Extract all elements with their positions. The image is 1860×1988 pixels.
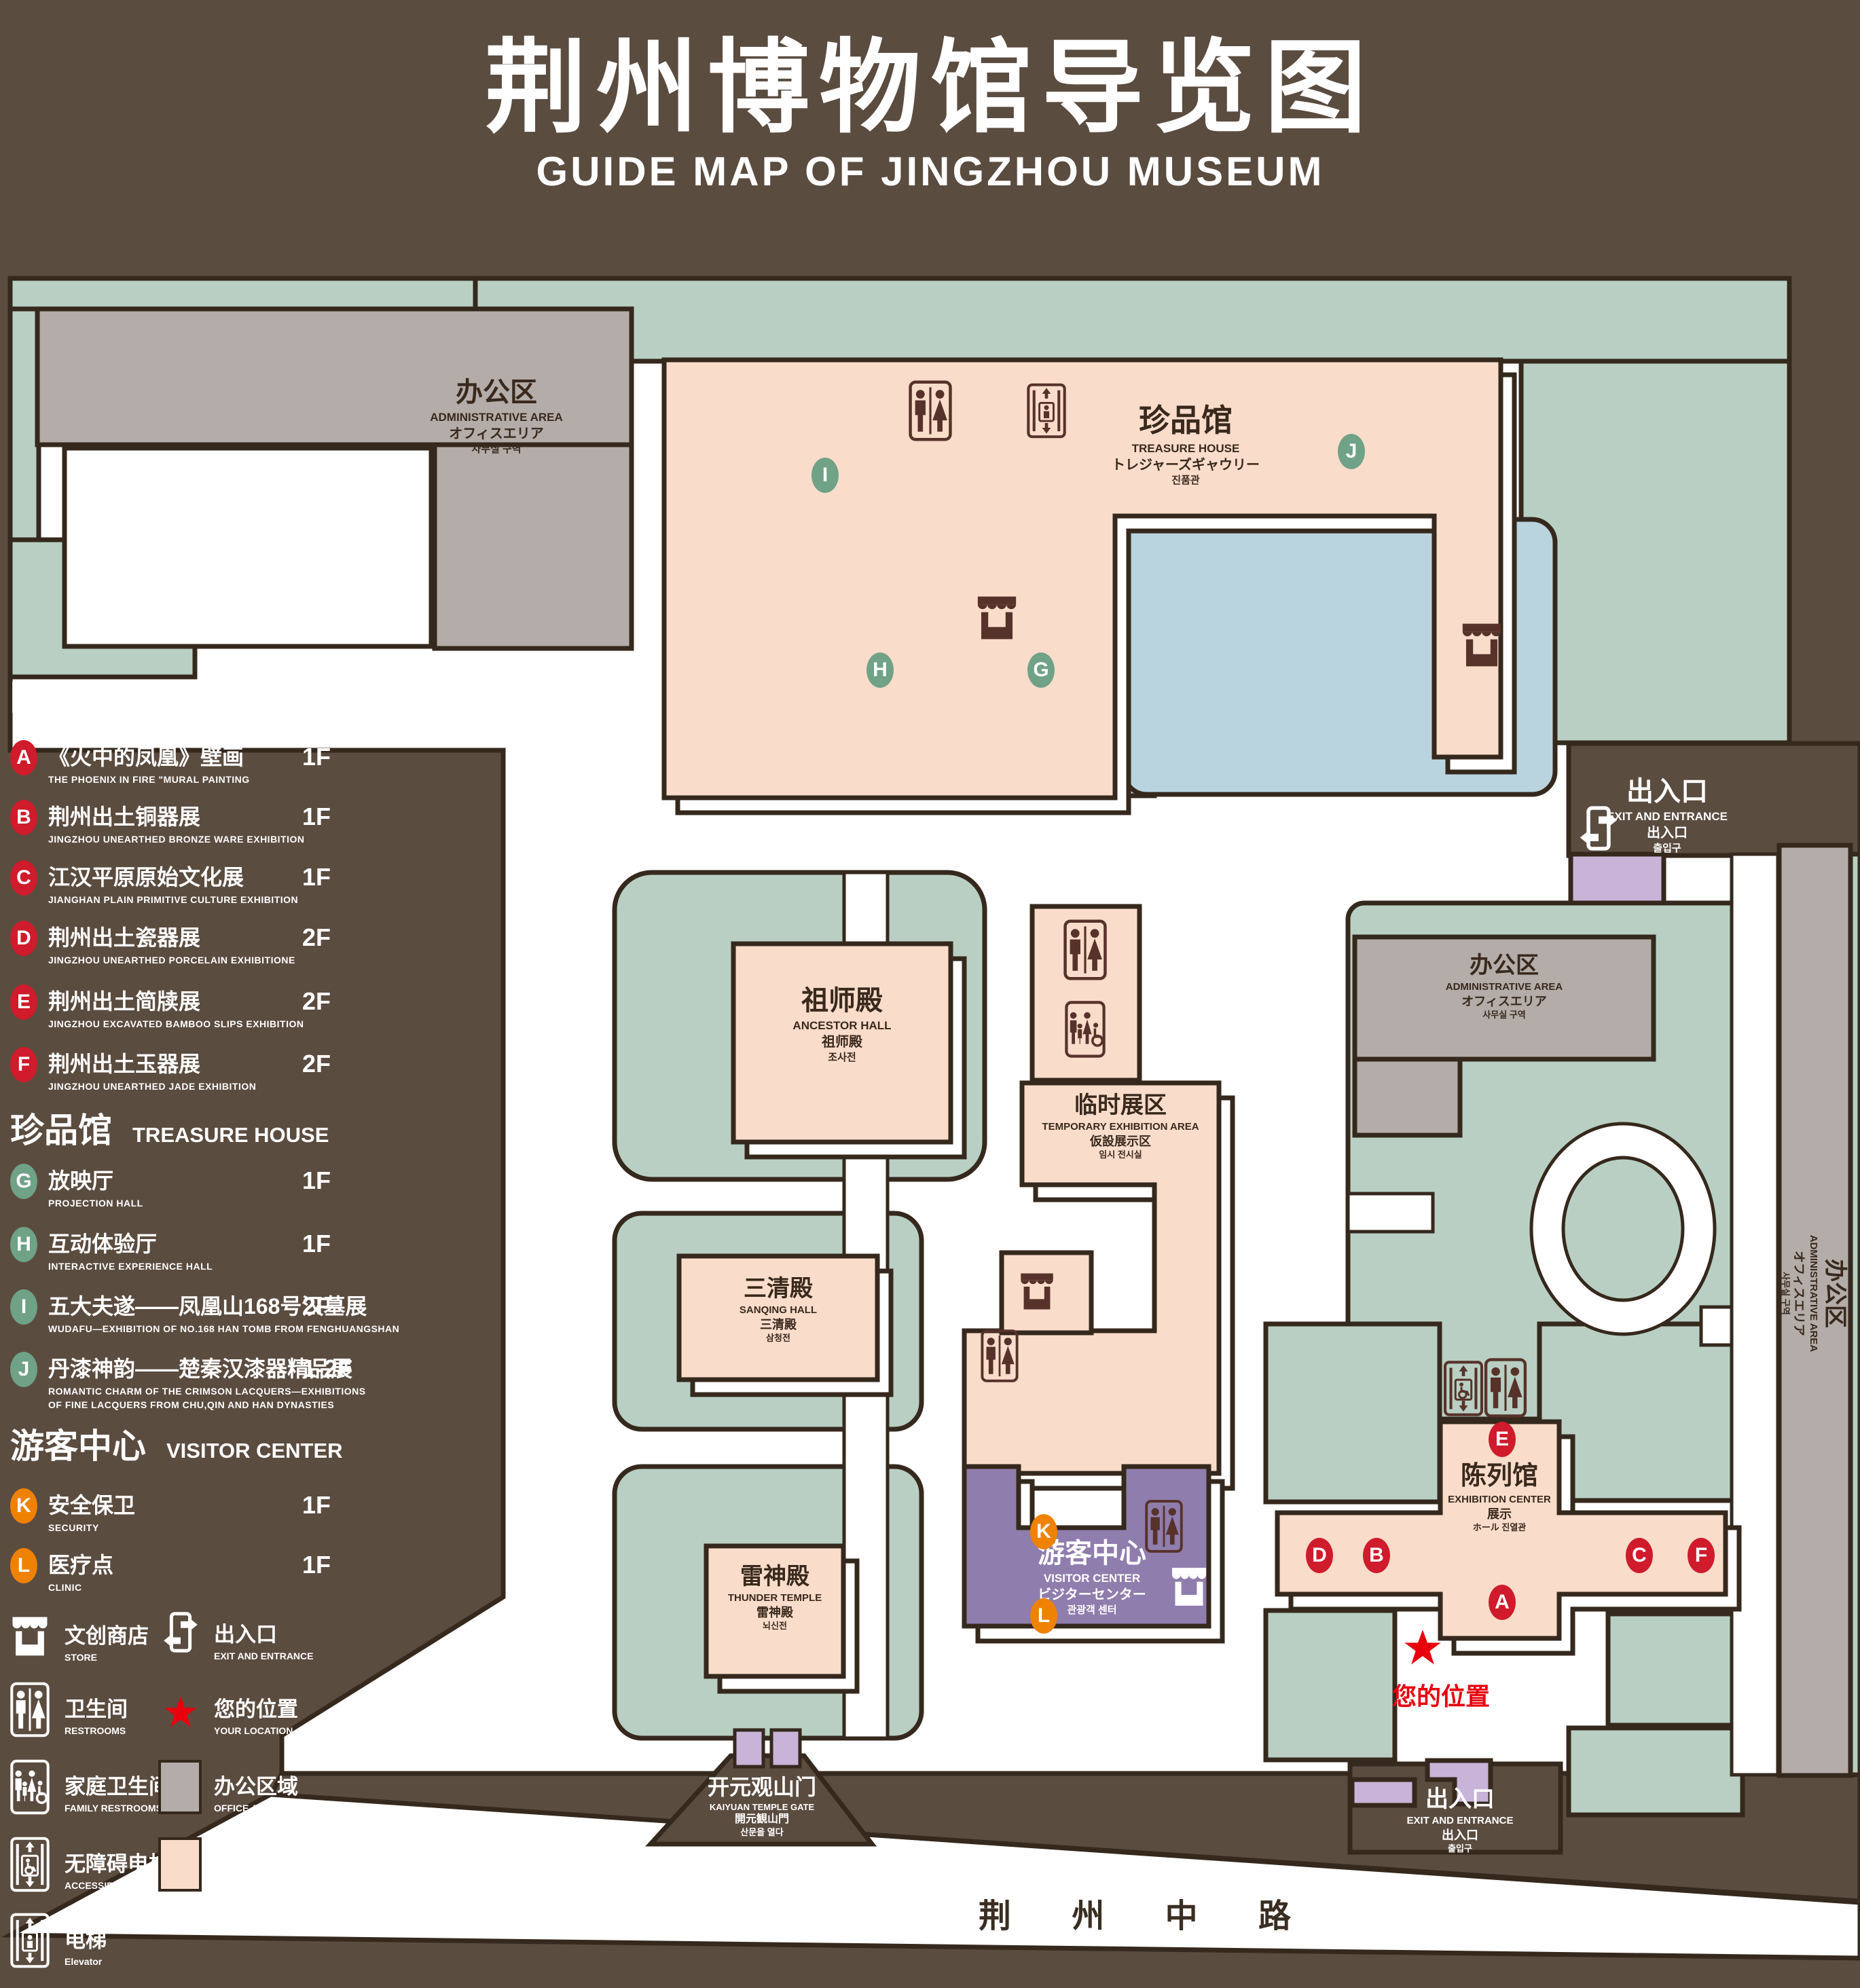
legend-restrooms: 卫生间 RESTROOMS	[65, 1692, 128, 1736]
store-icon	[975, 589, 1019, 646]
lawn	[1521, 361, 1789, 743]
guide-map-poster: 荆州博物馆导览图 GUIDE MAP OF JINGZHOU MUSEUM 陈列…	[0, 0, 1860, 1988]
your-location-star-icon	[1403, 1628, 1442, 1668]
legend-exit: 出入口 EXIT AND ENTRANCE	[214, 1617, 314, 1661]
poster-subtitle: GUIDE MAP OF JINGZHOU MUSEUM	[536, 148, 1325, 195]
legend-section-treasure-house: 珍品馆 TREASURE HOUSE	[10, 1103, 329, 1152]
restroom-icon	[1063, 919, 1107, 980]
legend-elevator: 电梯 Elevator	[65, 1923, 107, 1967]
marker-e: E	[10, 984, 37, 1020]
floor-i: 2F	[302, 1292, 331, 1321]
map-marker-c: C	[1626, 1538, 1653, 1573]
exit-entrance-icon	[160, 1608, 202, 1657]
legend-item-d: D 荆州出土瓷器展 JINGZHOU UNEARTHED PORCELAIN E…	[10, 921, 295, 965]
family-restrooms-icon	[10, 1759, 50, 1816]
marker-c: C	[10, 860, 37, 896]
map-marker-d: D	[1306, 1538, 1333, 1573]
office-area-swatch	[158, 1760, 202, 1814]
floor-j: 1-2F	[302, 1355, 352, 1383]
garden-island	[1563, 1158, 1683, 1300]
legend-item-k: K 安全保卫 SECURITY	[10, 1488, 135, 1533]
road-name-label: 荆 州 中 路	[979, 1889, 1317, 1936]
legend-section-visitor-center: 游客中心 VISITOR CENTER	[10, 1419, 343, 1468]
restrooms-icon	[10, 1681, 50, 1738]
marker-g: G	[10, 1164, 37, 1199]
lawn	[1266, 1610, 1395, 1760]
legend-item-g: G 放映厅 PROJECTION HALL	[10, 1164, 143, 1209]
exit-entrance-icon	[1574, 805, 1623, 851]
lawn	[1266, 1324, 1440, 1502]
floor-h: 1F	[302, 1230, 331, 1258]
floor-k: 1F	[302, 1491, 331, 1520]
sanqing-hall-label: 三清殿 SANQING HALL 三清殿 삼청전	[740, 1274, 817, 1344]
legend-item-b: B 荆州出土铜器展 JINGZHOU UNEARTHED BRONZE WARE…	[10, 800, 305, 845]
floor-a: 1F	[302, 743, 331, 771]
admin-area-label-strip: 办公区 ADMINISTRATIVE AREA オフィスエリア 사무실 구역	[1779, 1235, 1850, 1352]
map-marker-e: E	[1489, 1422, 1516, 1457]
map-marker-a: A	[1489, 1585, 1516, 1620]
gate-pillar	[735, 1730, 763, 1767]
floor-l: 1F	[302, 1551, 331, 1579]
legend-office-area: 办公区域 OFFICE AREA	[214, 1769, 298, 1814]
legend-family-restrooms: 家庭卫生间 FAMILY RESTROOMS	[65, 1769, 170, 1814]
legend-your-location: 您的位置 YOUR LOCATION	[214, 1692, 298, 1736]
legend-item-c: C 江汉平原原始文化展 JIANGHAN PLAIN PRIMITIVE CUL…	[10, 860, 298, 905]
store-icon	[1169, 1562, 1209, 1612]
legend-store: 文创商店 STORE	[65, 1619, 149, 1663]
store-icon	[1019, 1267, 1055, 1316]
admin-courtyard	[65, 448, 431, 646]
map-marker-k: K	[1030, 1514, 1057, 1549]
garden-path	[1348, 1194, 1433, 1232]
admin-building-top-left-wing	[435, 445, 632, 648]
store-icon	[1460, 616, 1503, 674]
map-marker-j: J	[1338, 434, 1365, 469]
admin-area-label-top-left: 办公区 ADMINISTRATIVE AREA オフィスエリア 사무실 구역	[430, 375, 563, 456]
map-marker-g: G	[1027, 652, 1055, 688]
lawn	[475, 278, 1789, 361]
restroom-icon	[1484, 1358, 1527, 1418]
floor-e: 2F	[302, 987, 331, 1016]
map-marker-b: B	[1363, 1538, 1390, 1573]
legend-item-i: I 五大夫遂——凤凰山168号汉墓展 WUDAFU—EXHIBITION OF …	[10, 1289, 399, 1334]
legend-section-exhibition-center: 陈列馆 EXHIBITION CENTER	[10, 671, 345, 720]
restroom-icon	[1145, 1499, 1183, 1553]
floor-b: 1F	[302, 803, 331, 831]
gate-structure	[1571, 854, 1664, 903]
perimeter-path	[1732, 854, 1778, 1775]
store-icon	[10, 1610, 50, 1662]
map-marker-i: I	[812, 458, 839, 493]
marker-h: H	[10, 1227, 37, 1262]
marker-f: F	[10, 1047, 37, 1082]
exhibition-center-label: 陈列馆 EXHIBITION CENTER 展示 ホール 진열관	[1448, 1460, 1551, 1534]
marker-i: I	[10, 1289, 37, 1325]
marker-a: A	[10, 740, 37, 775]
legend-item-h: H 互动体验厅 INTERACTIVE EXPERIENCE HALL	[10, 1227, 213, 1272]
legend-item-a: A 《火中的凤凰》壁画 THE PHOENIX IN FIRE "MURAL P…	[10, 740, 250, 785]
gate-pillar	[771, 1730, 800, 1767]
exit-entrance-label-bottom: 出入口 EXIT AND ENTRANCE 出入口 출입구	[1407, 1784, 1514, 1855]
exit-entrance-label-top-right: 出入口 EXIT AND ENTRANCE 出入口 출입구	[1607, 774, 1728, 855]
floor-g: 1F	[302, 1166, 331, 1195]
lawn	[1569, 1728, 1743, 1815]
elevator-icon	[1027, 380, 1066, 441]
temporary-exhibition-label: 临时展区 TEMPORARY EXHIBITION AREA 仮設展示区 임시 …	[1042, 1090, 1199, 1161]
map-marker-l: L	[1030, 1598, 1057, 1634]
admin-area-label-right: 办公区 ADMINISTRATIVE AREA オフィスエリア 사무실 구역	[1446, 951, 1563, 1021]
admin-building-right-annex	[1355, 1059, 1460, 1135]
accessible-elevator-icon	[1443, 1361, 1484, 1416]
marker-j: J	[10, 1352, 37, 1387]
legend-display-area: 展示区域 DISPLAY AREA	[214, 1847, 298, 1891]
legend-item-e: E 荆州出土简牍展 JINGZHOU EXCAVATED BAMBOO SLIP…	[10, 984, 304, 1029]
legend-item-l: L 医疗点 CLINIC	[10, 1548, 113, 1593]
thunder-temple-label: 雷神殿 THUNDER TEMPLE 雷神殿 뇌신전	[728, 1562, 822, 1632]
floor-c: 1F	[302, 863, 331, 891]
restroom-icon	[981, 1329, 1019, 1382]
marker-d: D	[10, 921, 37, 956]
floor-f: 2F	[302, 1050, 331, 1078]
elevator-icon	[10, 1912, 50, 1969]
marker-l: L	[10, 1548, 37, 1583]
kaiyuan-temple-gate-label: 开元观山门 KAIYUAN TEMPLE GATE 開元観山門 산문을 열다	[708, 1773, 816, 1839]
your-location-icon	[163, 1695, 198, 1730]
display-area-swatch	[158, 1837, 202, 1892]
poster-title: 荆州博物馆导览图	[485, 5, 1376, 153]
treasure-house-label: 珍品馆 TREASURE HOUSE トレジャーズギャウリー 진품관	[1112, 401, 1260, 487]
your-location-label: 您的位置	[1392, 1677, 1490, 1712]
floor-d: 2F	[302, 923, 331, 952]
map-marker-h: H	[867, 652, 894, 688]
ancestor-hall-label: 祖师殿 ANCESTOR HALL 祖师殿 조사전	[792, 983, 891, 1065]
accessible-elevator-icon	[10, 1836, 50, 1893]
family-restroom-icon	[1065, 1001, 1106, 1058]
map-marker-f: F	[1688, 1538, 1715, 1573]
lawn	[1608, 1614, 1745, 1725]
marker-b: B	[10, 800, 37, 835]
gate-structure	[1352, 1780, 1415, 1805]
marker-k: K	[10, 1488, 37, 1524]
restroom-icon	[909, 380, 952, 441]
legend-item-f: F 荆州出土玉器展 JINGZHOU UNEARTHED JADE EXHIBI…	[10, 1047, 256, 1092]
